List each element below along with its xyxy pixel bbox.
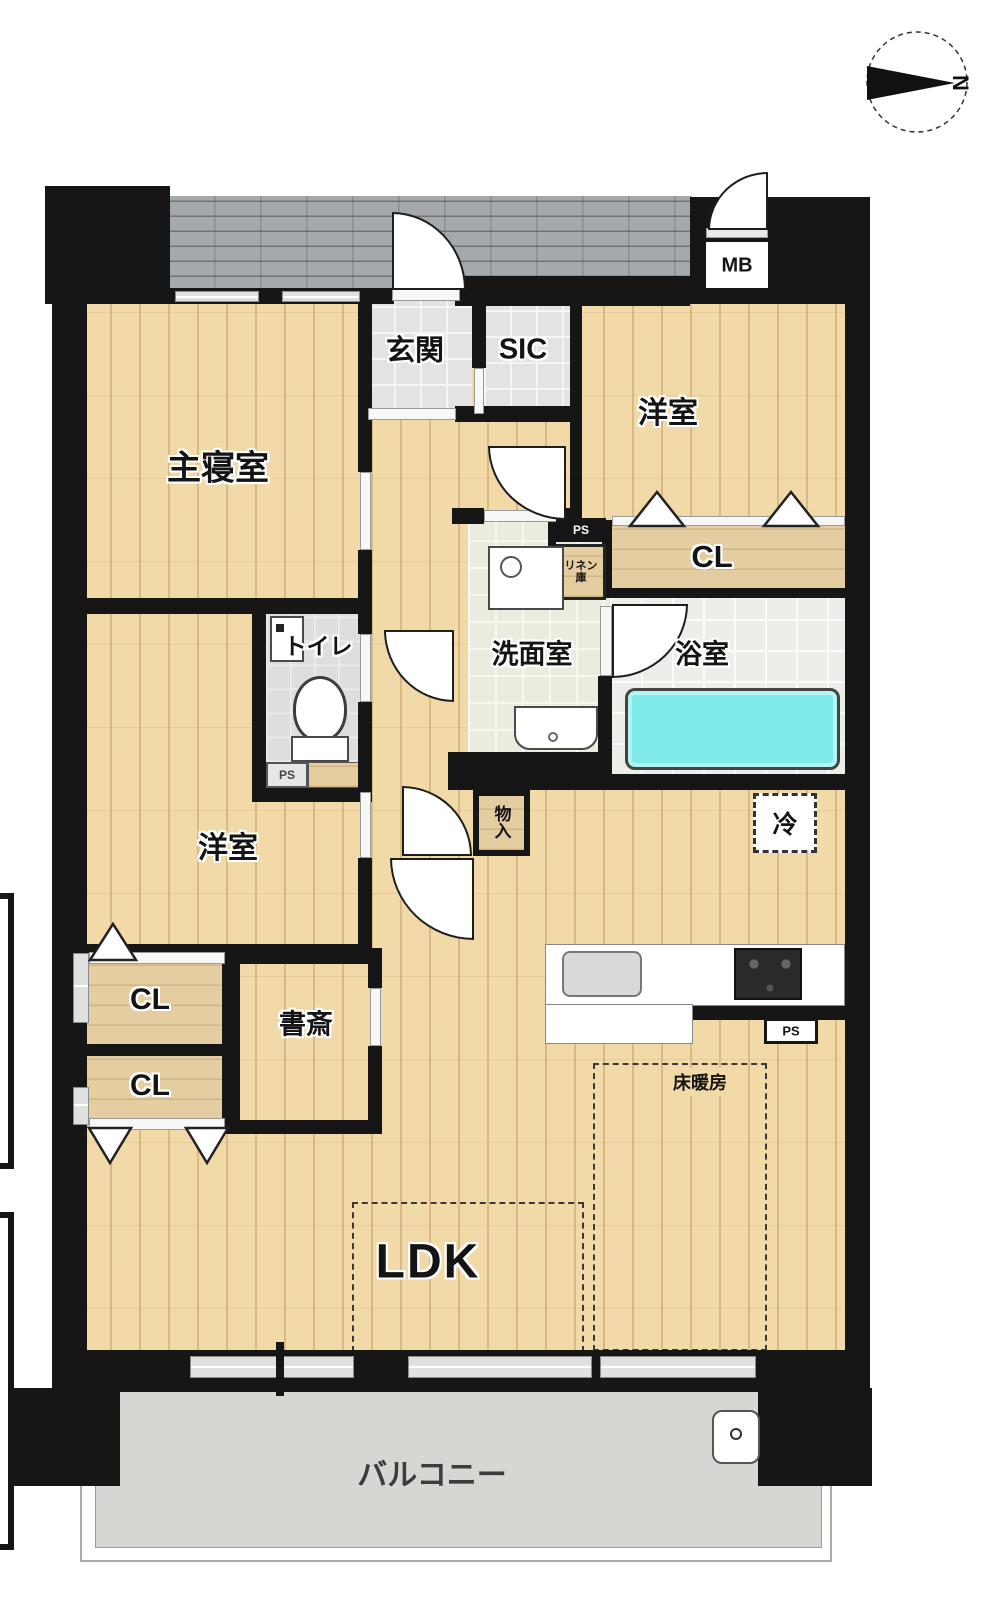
window-west-b bbox=[73, 1087, 89, 1125]
window-bedroom1-north-b bbox=[282, 291, 360, 302]
wall-bedroom2-east-b bbox=[358, 702, 372, 792]
wall-bathroom-south bbox=[598, 774, 870, 790]
mb-door-arc bbox=[708, 172, 768, 230]
washing-machine-pan bbox=[488, 546, 564, 610]
bedroom1-sliding-door bbox=[360, 472, 371, 550]
room-label-bedroom-ne: 洋室 bbox=[638, 388, 698, 432]
window-bedroom1-north-a bbox=[175, 291, 259, 302]
floor-heating-label: 床暖房 bbox=[671, 1068, 729, 1096]
floor-plan: N 主寝室 玄関 SIC 洋室 CL リネン庫 洗面室 浴室 トイレ 物入 冷 … bbox=[0, 0, 1000, 1615]
vanity-drain bbox=[548, 732, 558, 742]
wall-closet-divider bbox=[87, 1044, 225, 1056]
wall-washroom-south bbox=[448, 752, 612, 790]
kitchen-sink bbox=[562, 951, 642, 997]
room-label-sic: SIC bbox=[499, 334, 547, 367]
wall-bedroom1-east-a bbox=[358, 302, 372, 472]
neighbor-outline-lower bbox=[0, 1212, 14, 1550]
wall-west bbox=[52, 292, 87, 1392]
pipe-space-kitchen-label: PS bbox=[782, 1024, 799, 1039]
toilet-tank bbox=[291, 736, 349, 762]
compass: N bbox=[855, 22, 985, 147]
room-label-toilet: トイレ bbox=[284, 627, 353, 661]
wall-closet-east bbox=[222, 948, 240, 1134]
column-bottom-left bbox=[8, 1388, 120, 1486]
bathtub bbox=[625, 688, 840, 770]
room-label-bathroom: 浴室 bbox=[675, 633, 729, 672]
neighbor-outline-upper bbox=[0, 893, 14, 1169]
closet1-label: CL bbox=[130, 983, 170, 1017]
balcony-label: バルコニー bbox=[357, 1450, 506, 1494]
fridge-label: 冷 bbox=[772, 805, 797, 841]
window-west-a bbox=[73, 953, 89, 1023]
mullion-south bbox=[276, 1342, 284, 1396]
wall-bathroom-north bbox=[602, 588, 845, 598]
room-label-ldk: LDK bbox=[376, 1235, 481, 1290]
wall-toilet-north bbox=[252, 600, 372, 614]
wall-bedroom2-east-a bbox=[358, 600, 372, 634]
bedroom2-door-opening bbox=[360, 792, 371, 858]
pipe-space-toilet-label: PS bbox=[279, 768, 295, 782]
window-south-b bbox=[408, 1356, 592, 1378]
linen-label: リネン庫 bbox=[561, 560, 601, 584]
washing-machine-drain bbox=[500, 556, 522, 578]
wall-top-left-column bbox=[45, 186, 170, 292]
wall-washroom-north-a bbox=[452, 508, 484, 524]
window-south-c bbox=[600, 1356, 756, 1378]
study-door-opening bbox=[370, 988, 381, 1046]
washroom-vanity bbox=[514, 706, 598, 750]
compass-needle bbox=[867, 66, 955, 100]
wall-east bbox=[845, 292, 870, 1392]
wall-study-north bbox=[240, 948, 382, 964]
bathroom-door-opening bbox=[600, 606, 612, 676]
wall-toilet-west bbox=[252, 600, 266, 792]
room-label-study: 書斎 bbox=[279, 1003, 333, 1042]
column-bottom-right bbox=[758, 1388, 872, 1486]
meter-box-label: MB bbox=[721, 255, 752, 278]
wall-toilet-south bbox=[252, 788, 372, 802]
entrance-threshold bbox=[392, 289, 460, 301]
room-label-washroom: 洗面室 bbox=[492, 633, 573, 672]
closet-ne-opening bbox=[612, 516, 845, 526]
pipe-space-linen-label: PS bbox=[573, 523, 589, 537]
compass-n-label: N bbox=[948, 75, 973, 91]
closet2-label: CL bbox=[130, 1069, 170, 1103]
storage-label: 物入 bbox=[489, 805, 514, 839]
room-label-entrance: 玄関 bbox=[386, 327, 444, 369]
kitchen-stove bbox=[734, 948, 802, 1000]
closet-ne-label: CL bbox=[691, 539, 732, 575]
closet2-opening bbox=[89, 1118, 225, 1130]
kitchen-counter-return bbox=[545, 1004, 693, 1044]
wall-study-south bbox=[240, 1120, 382, 1134]
room-label-bedroom-sw: 洋室 bbox=[198, 823, 258, 867]
wall-entrance-sic-divider bbox=[472, 292, 486, 368]
floor-heating-area-right bbox=[593, 1063, 767, 1351]
slop-sink-faucet bbox=[730, 1428, 742, 1440]
closet1-opening bbox=[89, 952, 225, 964]
sic-passage bbox=[474, 368, 484, 414]
window-south-a bbox=[190, 1356, 354, 1378]
entrance-step-edge bbox=[368, 408, 456, 420]
toilet-bowl bbox=[293, 676, 347, 742]
room-label-master-bedroom: 主寝室 bbox=[167, 441, 269, 490]
wall-study-east-a bbox=[368, 964, 382, 988]
toilet-door-opening bbox=[360, 634, 371, 702]
toilet-side-counter bbox=[308, 762, 362, 788]
